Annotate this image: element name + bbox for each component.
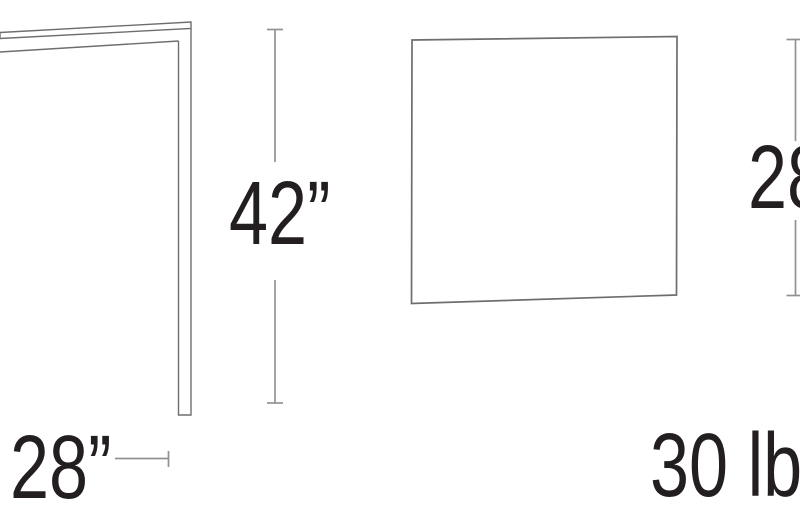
- table-leg: [179, 29, 192, 416]
- depth-dimension-label: 28”: [10, 423, 111, 513]
- table-top-view: [412, 37, 678, 304]
- height-dimension-label: 42”: [229, 169, 330, 259]
- tabletop-side: [0, 22, 191, 39]
- depth-dimension-line: [115, 451, 169, 467]
- dimension-diagram: 42” 28” 28 30 lb: [0, 0, 800, 519]
- table-side-view: [0, 22, 191, 415]
- width-dimension-label: 28: [748, 133, 800, 223]
- weight-label: 30 lb: [650, 421, 800, 511]
- apron-edge: [0, 41, 179, 52]
